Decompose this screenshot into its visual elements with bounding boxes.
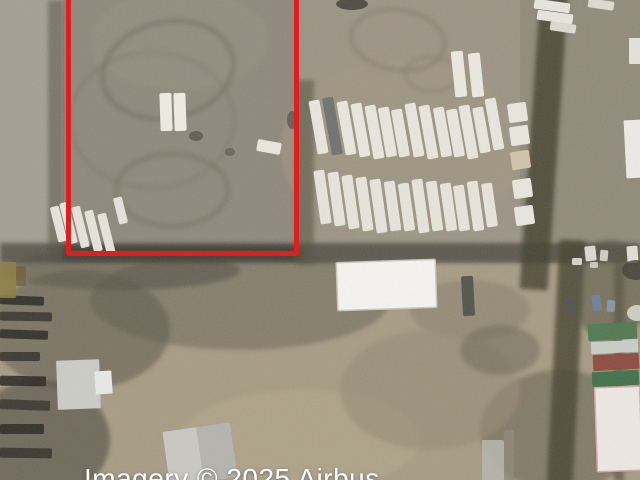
aerial-imagery: [0, 0, 640, 480]
image-noise-overlay: [0, 0, 640, 480]
imagery-attribution-text: Imagery © 2025 Airbus: [84, 463, 380, 480]
satellite-map-canvas[interactable]: Imagery © 2025 Airbus: [0, 0, 640, 480]
